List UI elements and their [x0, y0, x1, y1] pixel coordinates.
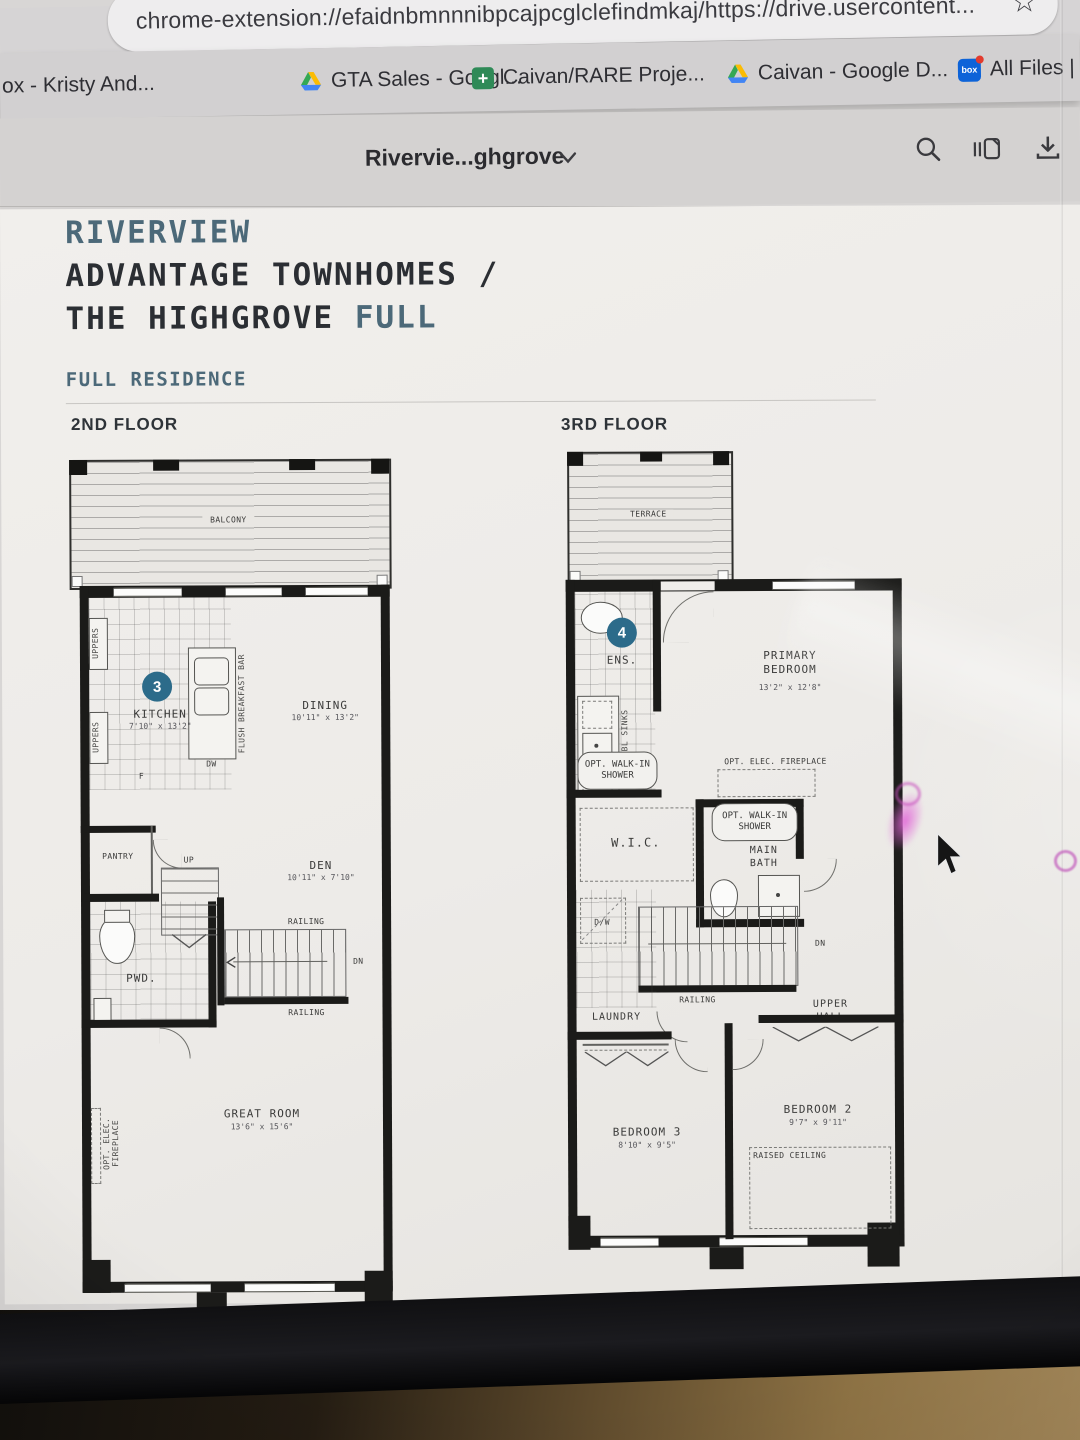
- floorplan-3rd: TERRACE 4 ENS. OPT. DBL SINKS OPT. WALK-…: [564, 450, 908, 1281]
- breakfast-bar-label: FLUSH BREAKFAST BAR: [237, 645, 247, 761]
- fireplace-label: OPT. ELEC. FIREPLACE: [102, 1096, 120, 1192]
- dn-label: DN: [806, 939, 834, 948]
- railing-label: RAILING: [662, 995, 732, 1004]
- great-room-dims: 13'6" x 15'6": [200, 1122, 324, 1132]
- bedroom2-dims: 9'7" x 9'11": [753, 1118, 883, 1128]
- dw-label: D/W: [582, 918, 622, 927]
- brand-title: RIVERVIEW: [65, 211, 251, 255]
- bookmark-item[interactable]: ox - Kristy And...: [2, 72, 155, 99]
- download-icon[interactable]: [1034, 133, 1062, 166]
- box-icon-text: box: [961, 65, 977, 75]
- bookmark-item[interactable]: + Caivan/RARE Proje...: [472, 62, 705, 90]
- fireplace-outline: [91, 1108, 101, 1184]
- fireplace-outline: [717, 769, 815, 797]
- dining-dims: 10'11" x 13'2": [265, 713, 385, 723]
- url-text[interactable]: chrome-extension://efaidnbmnnnibpcajpcgl…: [136, 0, 976, 35]
- search-icon[interactable]: [914, 135, 942, 168]
- uppers-label: UPPERS: [91, 714, 100, 760]
- railing-label: RAILING: [271, 1008, 341, 1017]
- den-dims: 10'11" x 7'10": [276, 873, 366, 882]
- door-arc: [733, 1039, 764, 1070]
- plan-title-variant: FULL: [355, 299, 438, 335]
- walkin-shower-option: OPT. WALK-IN SHOWER: [712, 803, 798, 841]
- bookmark-label: Caivan/RARE Proje...: [503, 62, 705, 90]
- bookmark-item[interactable]: Caivan - Google D...: [727, 58, 949, 86]
- fireplace-label: OPT. ELEC. FIREPLACE: [705, 757, 845, 767]
- door-arc: [663, 591, 714, 642]
- room-label-great-room: GREAT ROOM: [200, 1107, 324, 1121]
- floor2-heading: 2ND FLOOR: [71, 415, 178, 435]
- room-label-dining: DINING: [265, 699, 385, 713]
- railing-label: RAILING: [271, 917, 341, 926]
- bifold-doors: [773, 1027, 879, 1043]
- callout-badge-3: 3: [142, 672, 172, 702]
- stair-arrow: [225, 956, 237, 968]
- room-label-laundry: LAUNDRY: [573, 1011, 661, 1022]
- plus-icon: +: [472, 67, 494, 89]
- screen-smudge: [895, 782, 921, 806]
- pdf-doc-title[interactable]: Rivervie...ghgrove: [365, 143, 565, 172]
- uppers-label: UPPERS: [91, 620, 100, 666]
- divider-rule: [66, 400, 876, 405]
- stairs-down: [638, 906, 798, 987]
- bookmark-item[interactable]: box All Files |: [958, 56, 1075, 82]
- door-arc: [804, 859, 837, 892]
- stairs-down: [224, 929, 346, 998]
- chevron-down-icon[interactable]: [558, 150, 578, 164]
- room-label-pantry: PANTRY: [87, 852, 149, 861]
- stairs-up: [161, 867, 219, 935]
- floorplan-2nd: BALCONY UPPERS UPPERS FLUSH BREAKFAST BA…: [69, 459, 399, 1305]
- mouse-cursor: [934, 832, 968, 883]
- plan-title-line2: ADVANTAGE TOWNHOMES /: [65, 253, 499, 298]
- room-label-main-bath: MAIN BATH: [734, 845, 794, 870]
- room-label-balcony: BALCONY: [69, 515, 387, 525]
- bifold-doors: [585, 1051, 669, 1067]
- room-label-pwd: PWD.: [101, 972, 181, 985]
- bookmark-label: Caivan - Google D...: [758, 58, 949, 85]
- bookmark-label: ox - Kristy And...: [2, 72, 155, 99]
- screen-smudge: [1054, 850, 1077, 872]
- kitchen-dims: 7'10" x 13'2": [105, 721, 215, 730]
- callout-badge-4: 4: [607, 618, 637, 648]
- dn-label: DN: [345, 957, 371, 966]
- fridge-label: F: [134, 772, 148, 781]
- screen-edge: [1060, 0, 1063, 1300]
- primary-bedroom-dims: 13'2" x 12'8": [735, 683, 845, 692]
- room-label-den: DEN: [276, 859, 366, 872]
- drive-icon: [727, 63, 749, 85]
- dw-label: DW: [188, 759, 234, 768]
- room-label-bedroom2: BEDROOM 2: [753, 1103, 883, 1117]
- drive-icon: [300, 70, 322, 92]
- thumbnails-icon[interactable]: [972, 134, 1004, 167]
- pdf-page: RIVERVIEW ADVANTAGE TOWNHOMES / THE HIGH…: [0, 205, 1080, 1305]
- room-label-bedroom3: BEDROOM 3: [585, 1125, 709, 1139]
- floor3-heading: 3RD FLOOR: [561, 414, 668, 434]
- stair-chevron: [171, 933, 207, 949]
- plan-title-line3: THE HIGHGROVE: [65, 300, 334, 337]
- pdf-toolbar: Rivervie...ghgrove: [0, 107, 1080, 212]
- bedroom3-dims: 8'10" x 9'5": [585, 1140, 709, 1150]
- room-label-kitchen: KITCHEN: [105, 707, 215, 720]
- room-label-primary-bedroom: PRIMARY BEDROOM: [735, 649, 845, 677]
- residence-subtitle: FULL RESIDENCE: [66, 368, 247, 391]
- door-arc: [675, 1039, 708, 1072]
- room-label-wic: W.I.C.: [596, 835, 676, 849]
- box-icon: box: [958, 58, 981, 81]
- room-label-ensuite: ENS.: [589, 654, 655, 667]
- raised-ceiling-label: RAISED CEILING: [753, 1151, 883, 1161]
- room-label-terrace: TERRACE: [567, 509, 729, 519]
- bookmark-star-icon[interactable]: ☆: [1010, 0, 1038, 20]
- notification-dot: [976, 55, 984, 63]
- up-label: UP: [161, 855, 217, 864]
- walkin-shower-option: OPT. WALK-IN SHOWER: [577, 751, 657, 789]
